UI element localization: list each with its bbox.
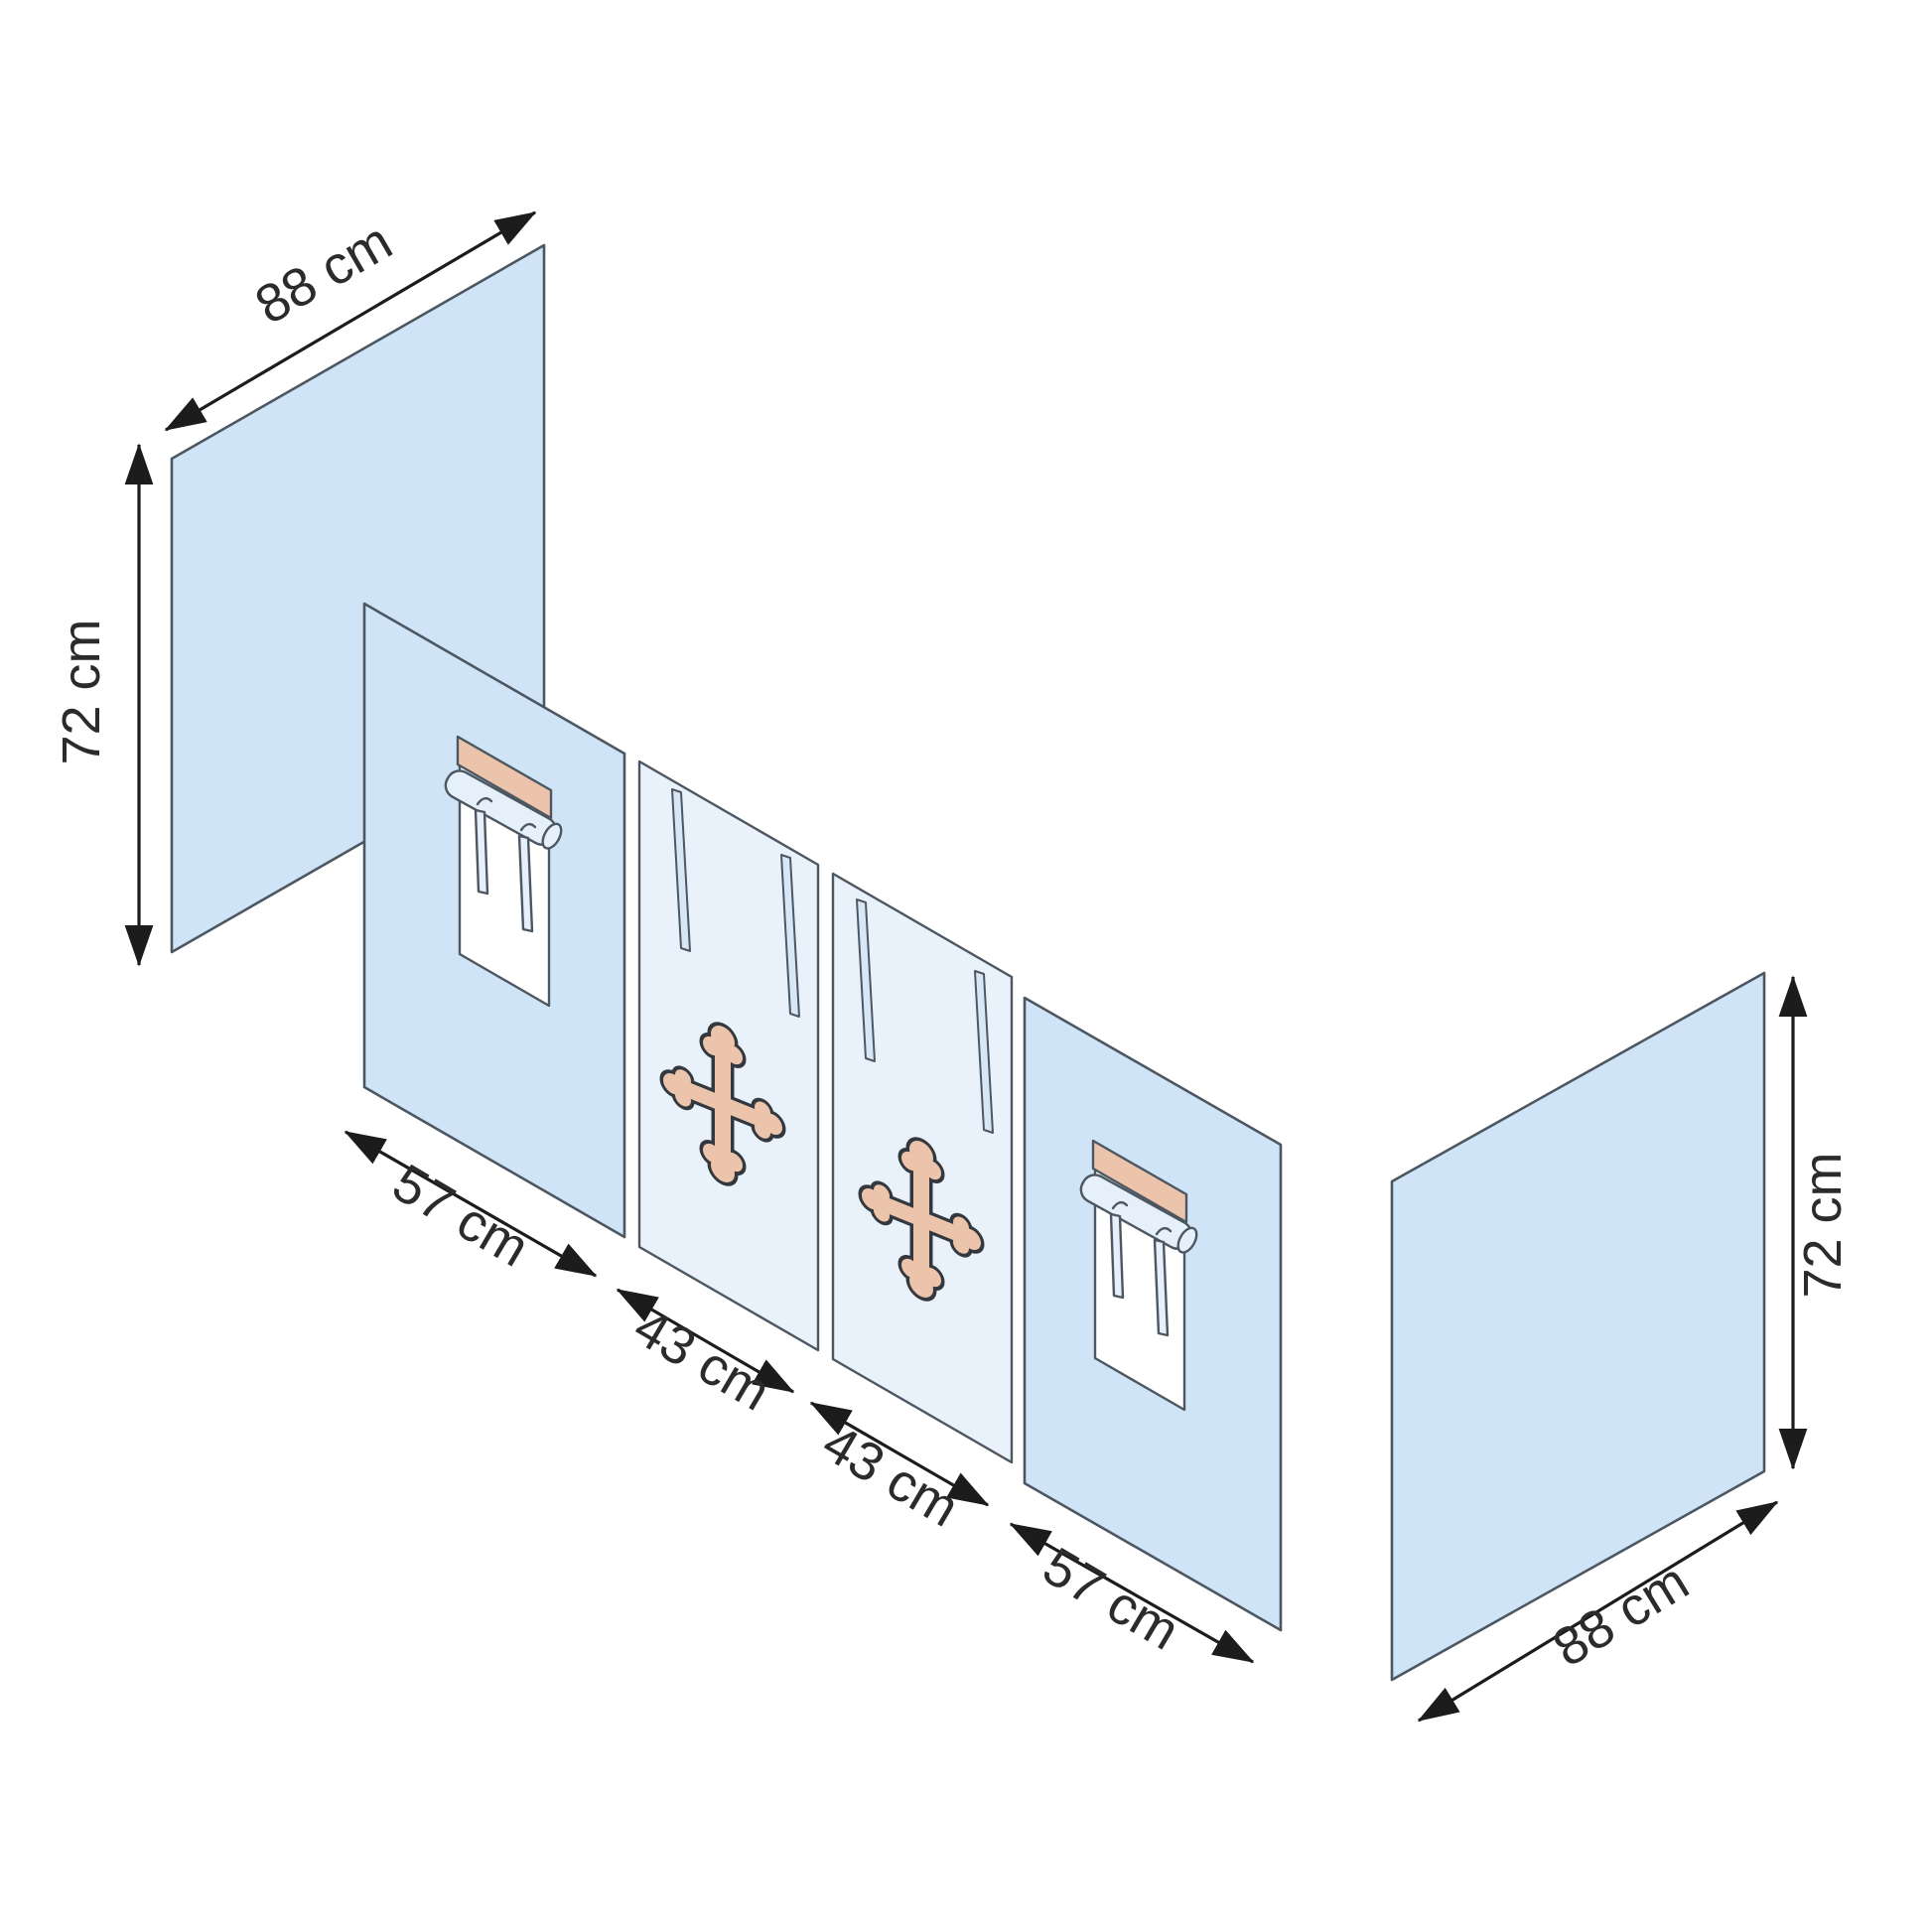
dim-label-left-height: 72 cm [52, 619, 111, 764]
front-panel-3 [833, 874, 1012, 1462]
dim-label-left-width: 88 cm [245, 211, 401, 336]
diagram-canvas: 88 cm 72 cm 57 cm 43 cm 43 cm 57 cm 72 c… [0, 0, 1932, 1932]
dim-label-right-height: 72 cm [1793, 1152, 1853, 1298]
dim-label-front3: 43 cm [813, 1413, 969, 1538]
front-panel-2 [639, 761, 818, 1350]
panel-dimension-diagram: 88 cm 72 cm 57 cm 43 cm 43 cm 57 cm 72 c… [0, 0, 1932, 1932]
side-panel-right [1392, 973, 1764, 1680]
front-panel-1 [364, 604, 624, 1237]
